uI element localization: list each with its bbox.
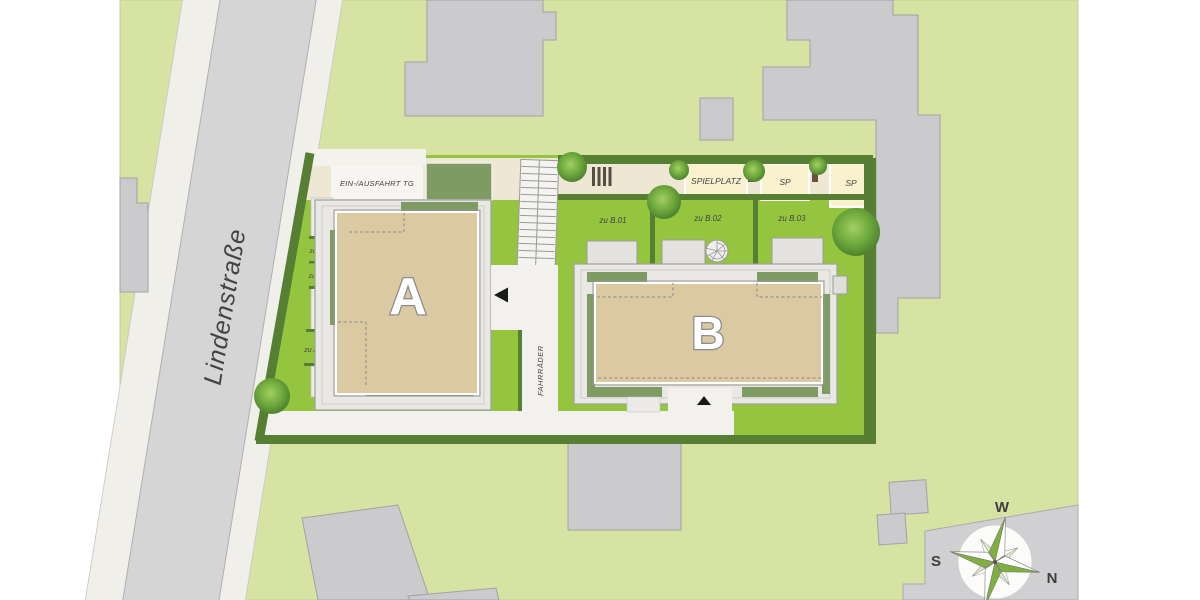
building-a: A xyxy=(315,200,491,410)
neighbor-building-bottom-center xyxy=(568,441,681,530)
sage-strip-b-bottom-right xyxy=(742,387,818,397)
compass-label-north: N xyxy=(1047,570,1058,587)
playground-label: SPIELPLATZ xyxy=(691,176,742,186)
building-b-label: B xyxy=(691,307,724,359)
building-a-label: A xyxy=(389,268,427,326)
tree xyxy=(557,152,587,182)
garage-ramp xyxy=(517,159,559,266)
sp-label-2: SP xyxy=(845,178,857,188)
building-b-porch-2 xyxy=(662,240,705,264)
building-b-porch-1 xyxy=(587,241,637,265)
sage-strip-b-bottom-left xyxy=(587,387,662,397)
spiral-stair-icon xyxy=(706,240,728,262)
top-walkway xyxy=(308,149,426,166)
building-b-porch-3 xyxy=(772,238,823,264)
hedge-bottom xyxy=(256,435,876,444)
planting-box-top xyxy=(426,163,492,200)
tree xyxy=(743,160,765,182)
garden-b2-label: zu B.02 xyxy=(693,214,722,223)
compass-label-south: S xyxy=(931,553,941,570)
bicycles-label: FAHRRÄDER xyxy=(536,345,545,396)
compass-label-west: W xyxy=(995,499,1010,516)
building-b-terrace xyxy=(627,397,660,412)
site-plan-page: Lindenstraße EIN-/AUSFAHRT TG SPIELPLATZ… xyxy=(0,0,1200,600)
neighbor-building-small-top xyxy=(700,98,733,140)
tree xyxy=(832,208,880,256)
sage-strip-b-left xyxy=(587,294,595,394)
hedge-right xyxy=(864,158,876,440)
neighbor-building-top-center xyxy=(405,0,556,116)
tree xyxy=(254,378,290,414)
tree xyxy=(669,160,689,180)
neighbor-building-bottom-right-2 xyxy=(877,513,907,545)
neighbor-building-bottom-right-1 xyxy=(889,480,928,516)
driveway-label: EIN-/AUSFAHRT TG xyxy=(340,179,414,188)
tree xyxy=(647,185,681,219)
garden-b3-label: zu B.03 xyxy=(777,214,806,223)
bottom-walkway xyxy=(262,411,734,435)
garden-b1-label: zu B.01 xyxy=(598,216,626,225)
hedge-b-gardens-top xyxy=(558,194,864,200)
building-b-entrance-path xyxy=(668,388,732,434)
sage-strip-b-right xyxy=(822,294,830,394)
sp-label-1: SP xyxy=(779,177,791,187)
tree xyxy=(809,157,827,175)
building-b-porch-right xyxy=(833,276,847,294)
site-plan-drawing: Lindenstraße EIN-/AUSFAHRT TG SPIELPLATZ… xyxy=(0,0,1200,600)
